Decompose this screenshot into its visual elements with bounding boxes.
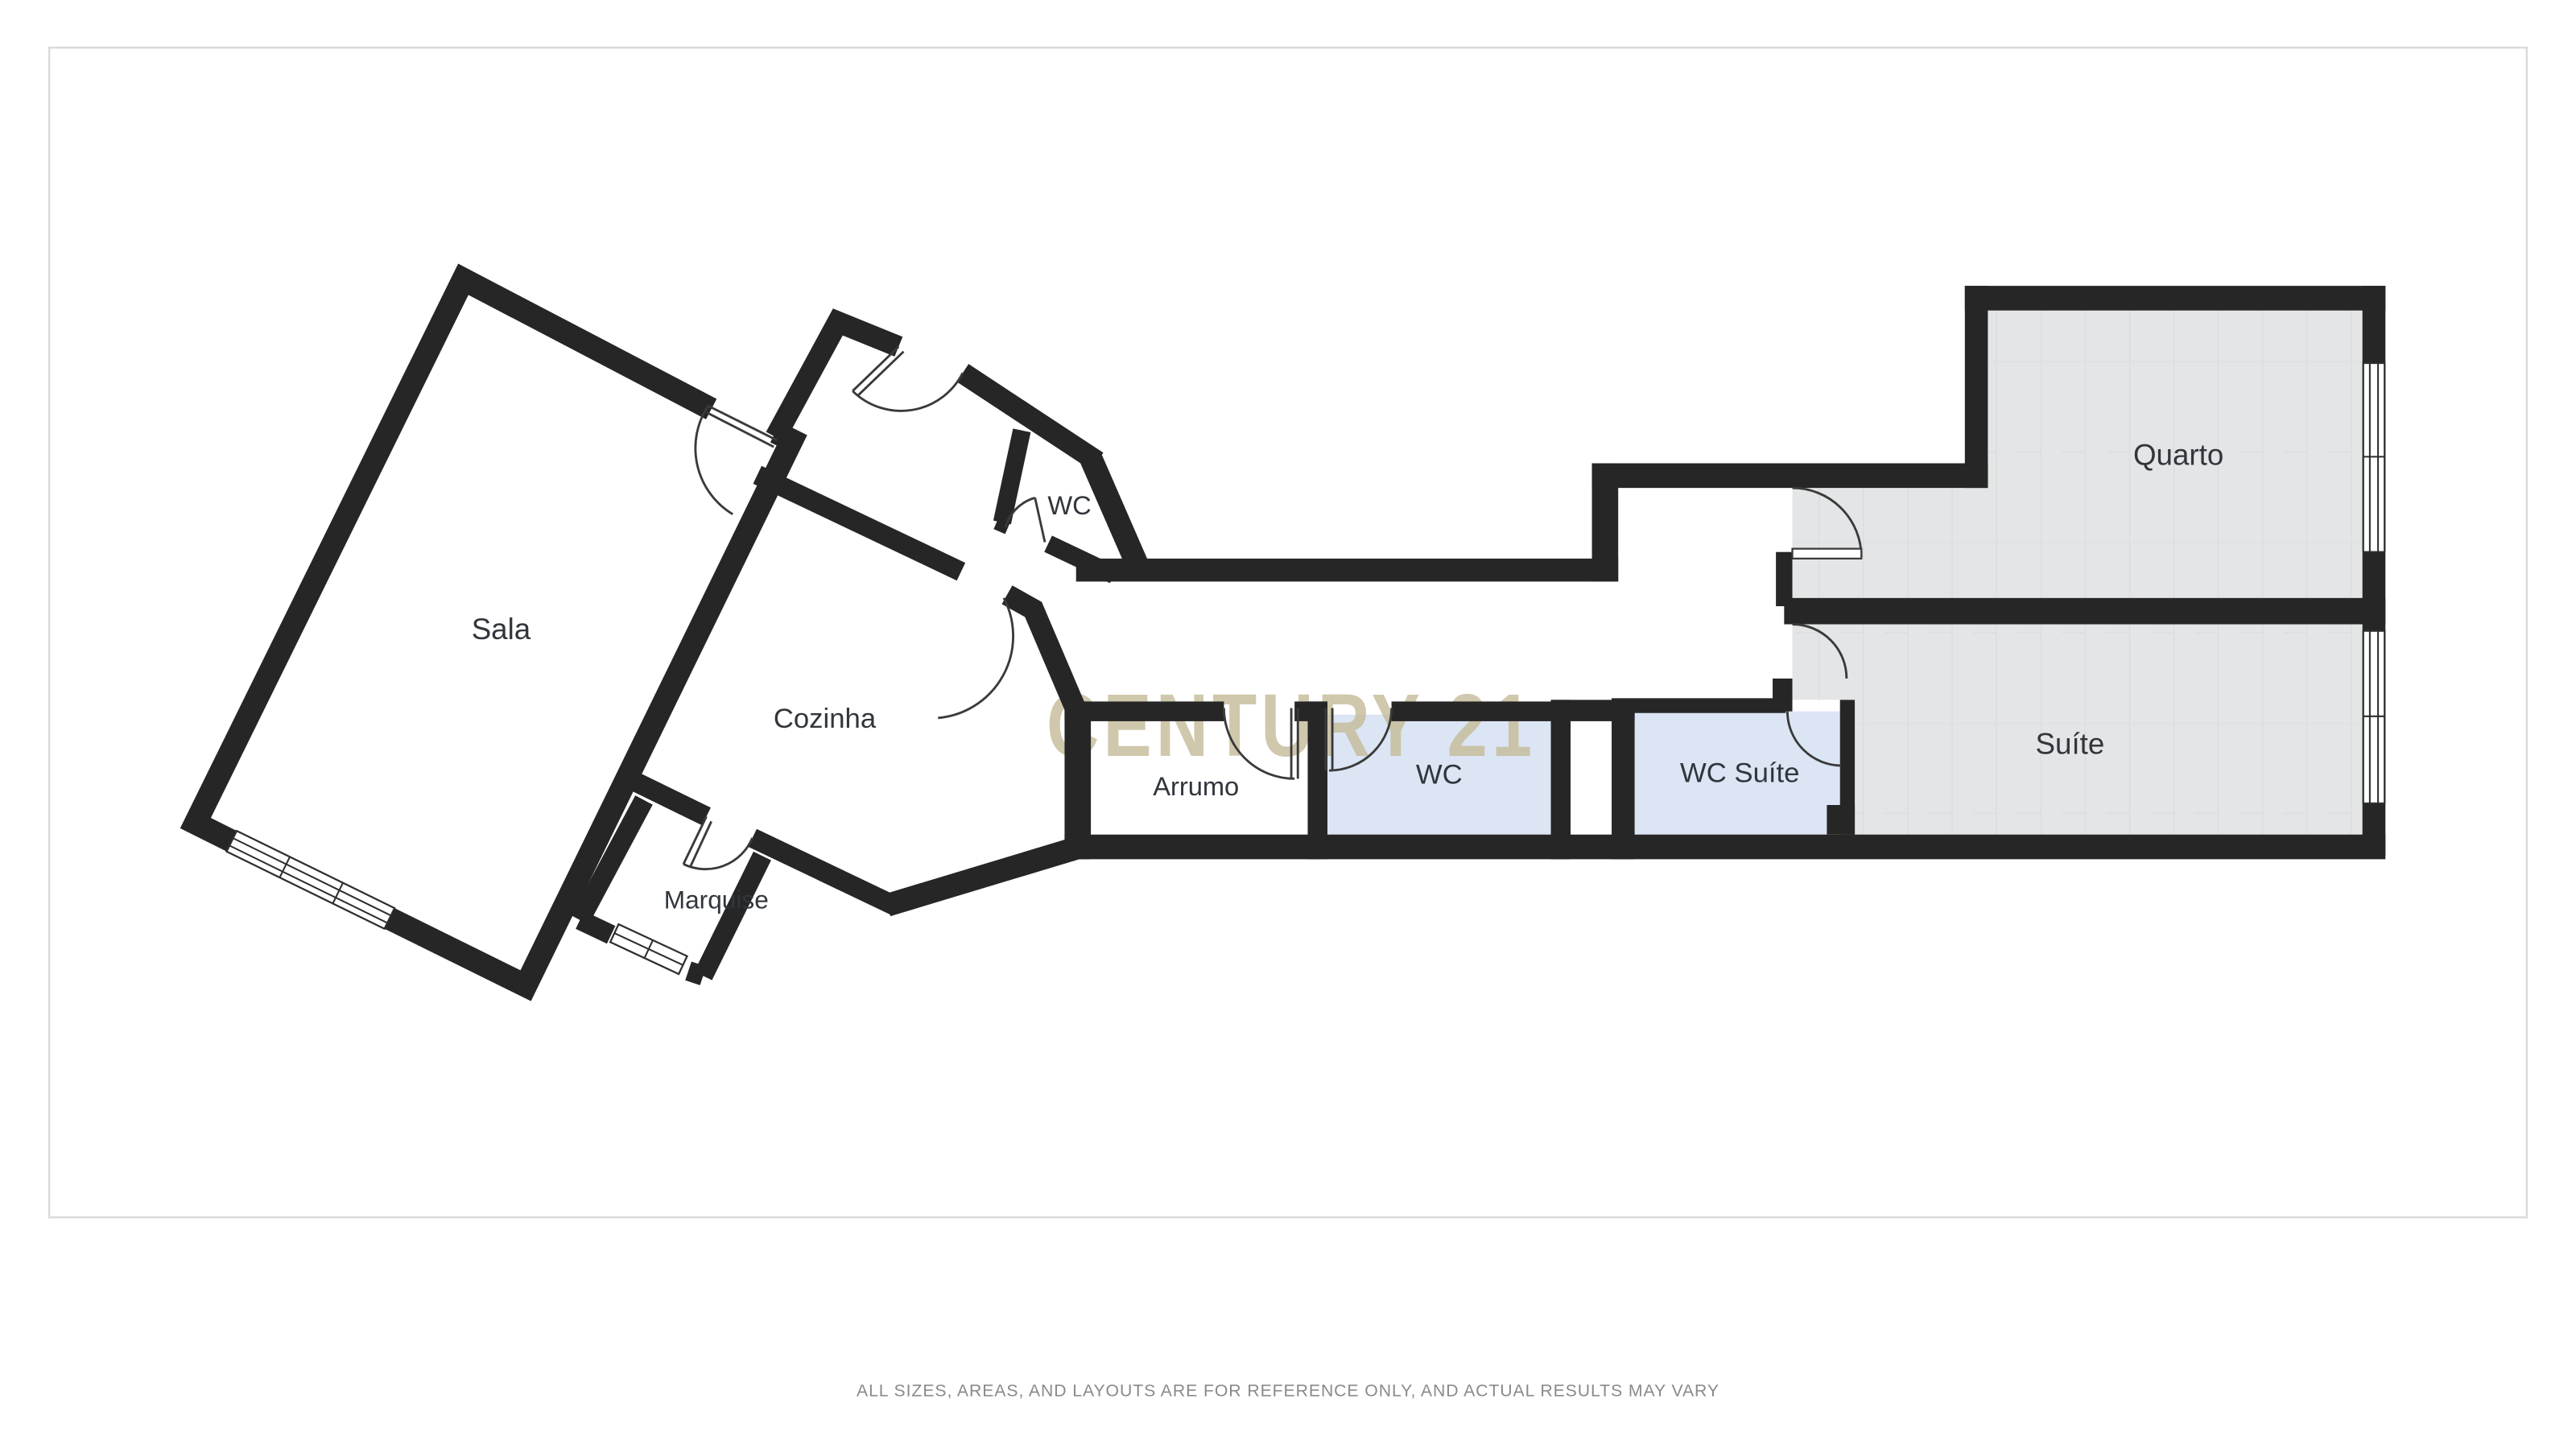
disclaimer-text: ALL SIZES, AREAS, AND LAYOUTS ARE FOR RE… (857, 1382, 1719, 1401)
wc-top-wall (1392, 701, 1551, 720)
room-label-wc-hall: WC (1047, 490, 1091, 520)
bottom-exterior-wall (1064, 835, 2385, 860)
spine-stub-wall-upper (1776, 552, 1792, 606)
quarto-left-wall (1965, 286, 1988, 488)
quarto-window (2363, 363, 2385, 552)
quarto-top-wall (1965, 286, 2385, 311)
room-label-marquise: Marquise (664, 885, 769, 914)
upper-corridor-wall (1592, 464, 1988, 489)
suite-window (2363, 631, 2385, 803)
room-label-quarto: Quarto (2133, 439, 2223, 472)
suite-corner-block (1827, 805, 1855, 835)
room-label-arrumo: Arrumo (1153, 771, 1239, 801)
quarto-suite-divider-wall (1784, 598, 2385, 625)
arrumo-top-wall (1064, 701, 1224, 720)
floor-plan-canvas: CENTURY 21 (0, 0, 2576, 1449)
room-label-sala: Sala (472, 613, 531, 646)
corridor-top-wall (1076, 559, 1618, 582)
room-label-suite: Suíte (2036, 728, 2105, 761)
room-label-wc-suite: WC Suíte (1680, 758, 1799, 788)
wc-suite-top-wall (1612, 698, 1785, 712)
room-label-wc: WC (1416, 759, 1463, 790)
room-label-cozinha: Cozinha (774, 704, 877, 734)
utility-slot (1571, 721, 1612, 835)
